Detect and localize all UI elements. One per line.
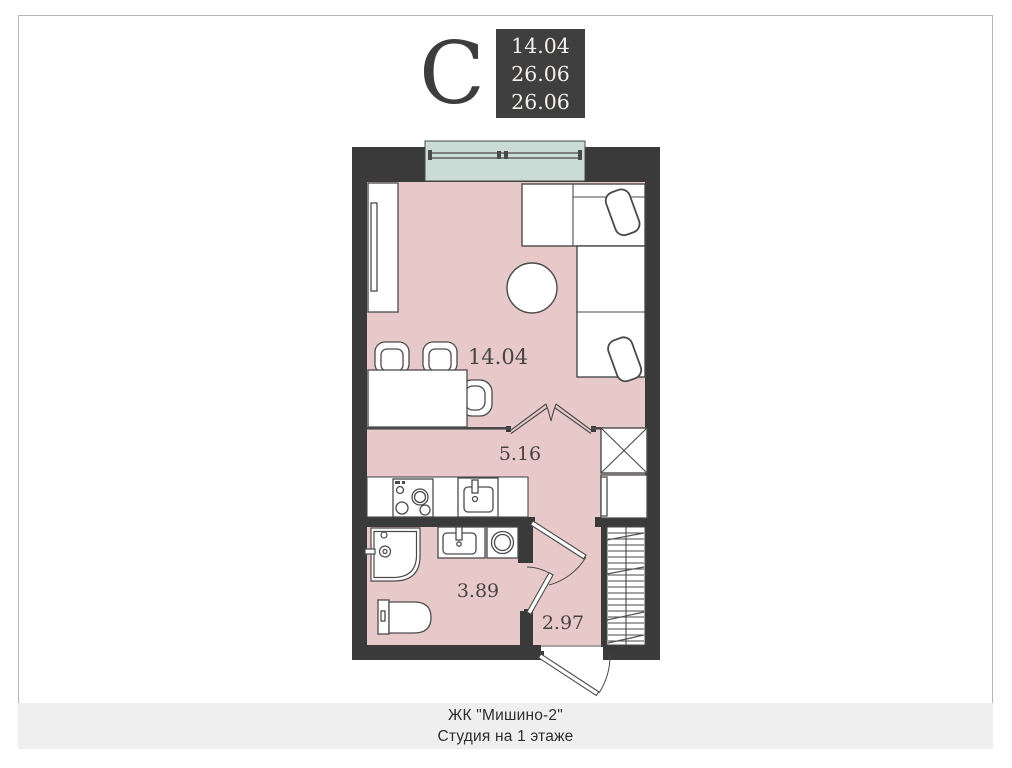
chair-icon — [423, 342, 457, 374]
kitchen-counter — [367, 477, 528, 517]
floor-plan — [340, 130, 685, 705]
wardrobe — [368, 183, 398, 312]
washbasin-icon — [438, 527, 485, 558]
door-entry — [539, 646, 610, 696]
toilet-icon — [378, 600, 431, 634]
window — [425, 141, 585, 181]
area-badge: 14.04 26.06 26.06 — [496, 29, 585, 118]
caption-apartment-type: Студия на 1 этаже — [437, 726, 573, 747]
kitchen-sink-icon — [458, 478, 498, 517]
closet — [601, 475, 647, 518]
staircase — [607, 527, 645, 645]
washing-machine-icon — [487, 527, 518, 558]
stove-icon — [393, 479, 433, 517]
page: { "compass": { "letter": "С" }, "area_ba… — [0, 0, 1012, 768]
chair-icon — [375, 342, 409, 374]
room-label-bathroom: 3.89 — [457, 580, 499, 602]
area-badge-value: 26.06 — [511, 60, 570, 88]
room-label-hall: 5.16 — [499, 443, 541, 465]
shower-basin-icon — [365, 528, 420, 581]
dining-table — [368, 370, 467, 427]
room-label-entry: 2.97 — [542, 612, 584, 634]
compass-north-letter: С — [419, 31, 485, 117]
caption-band: ЖК "Мишино-2" Студия на 1 этаже — [18, 703, 993, 749]
room-label-living: 14.04 — [468, 345, 528, 369]
area-badge-value: 26.06 — [511, 88, 570, 116]
area-badge-value: 14.04 — [511, 32, 570, 60]
ventilation-shaft — [601, 428, 647, 473]
round-table — [507, 263, 557, 313]
caption-complex-name: ЖК "Мишино-2" — [448, 705, 563, 726]
